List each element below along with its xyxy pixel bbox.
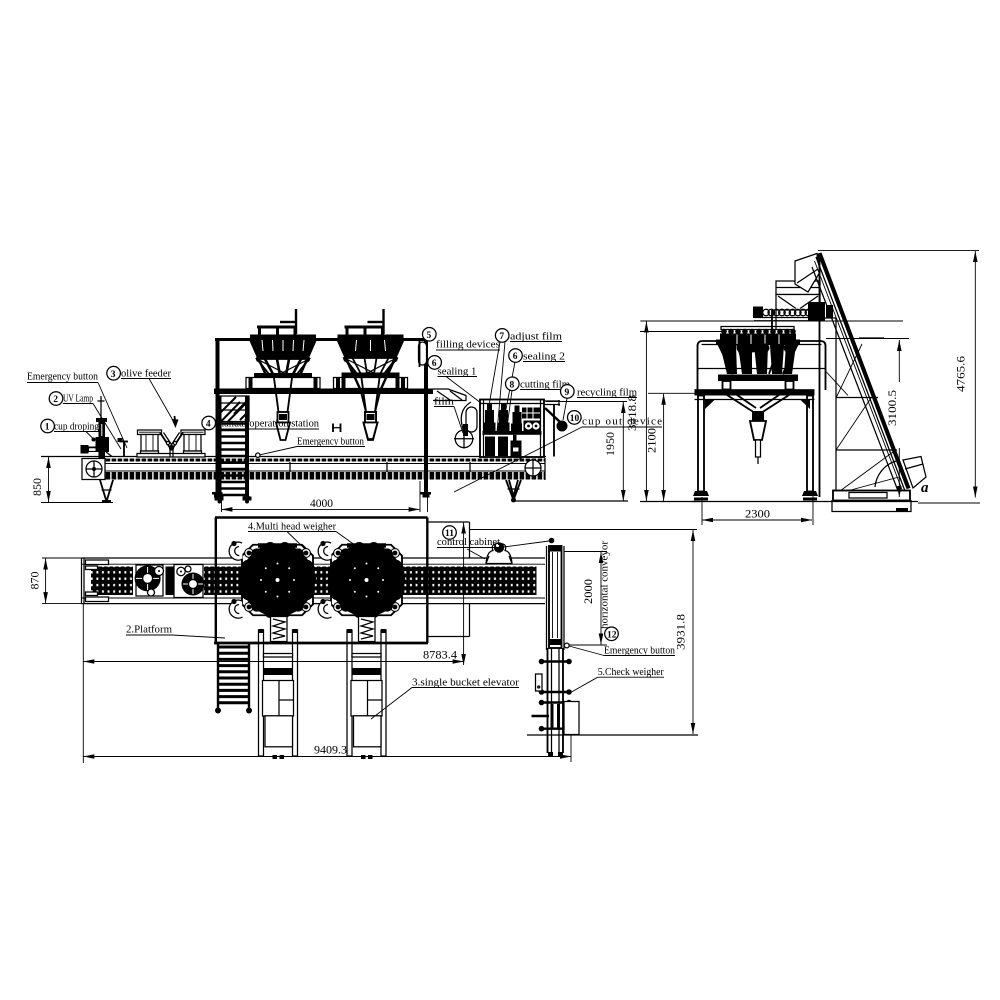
svg-text:cup droping: cup droping <box>54 421 99 433</box>
svg-text:6: 6 <box>513 352 518 362</box>
svg-text:horizontal conveyor: horizontal conveyor <box>599 541 611 629</box>
svg-text:recycling film: recycling film <box>577 387 637 399</box>
svg-text:9: 9 <box>565 388 570 398</box>
svg-text:sealing 1: sealing 1 <box>438 366 477 378</box>
svg-text:4: 4 <box>206 420 211 430</box>
svg-text:3.single bucket elevator: 3.single bucket elevator <box>412 677 519 689</box>
svg-text:2100: 2100 <box>647 428 659 453</box>
svg-text:8: 8 <box>510 380 515 390</box>
svg-text:4000: 4000 <box>310 498 333 510</box>
svg-text:7: 7 <box>499 332 504 342</box>
svg-text:870: 870 <box>30 571 42 589</box>
svg-text:Emergency button: Emergency button <box>297 436 364 448</box>
svg-text:5: 5 <box>427 331 432 341</box>
svg-text:1: 1 <box>45 423 50 433</box>
svg-text:UV Lamp: UV Lamp <box>63 393 93 405</box>
svg-text:9409.3: 9409.3 <box>314 745 347 757</box>
svg-text:2.Platform: 2.Platform <box>126 624 172 636</box>
svg-text:3100.5: 3100.5 <box>887 390 899 426</box>
svg-text:2300: 2300 <box>745 509 770 521</box>
svg-text:3931.8: 3931.8 <box>676 614 688 650</box>
svg-text:4765.6: 4765.6 <box>956 356 968 392</box>
svg-text:control cabinet: control cabinet <box>437 536 500 548</box>
svg-text:2000: 2000 <box>583 579 595 604</box>
svg-text:5.Check weigher: 5.Check weigher <box>598 666 664 678</box>
svg-text:1950: 1950 <box>605 432 617 456</box>
svg-text:sealing 2: sealing 2 <box>523 351 565 363</box>
svg-text:Emergency button: Emergency button <box>604 645 675 657</box>
svg-text:olive feeder: olive feeder <box>121 368 171 380</box>
svg-text:Emergency button: Emergency button <box>27 371 98 383</box>
svg-text:manual operation station: manual operation station <box>216 418 319 430</box>
svg-text:2: 2 <box>53 395 58 405</box>
svg-text:10: 10 <box>570 414 580 424</box>
svg-text:6: 6 <box>432 359 437 369</box>
svg-text:4.Multi head weigher: 4.Multi head weigher <box>248 521 336 533</box>
svg-text:film: film <box>434 396 454 408</box>
svg-text:a: a <box>921 480 929 496</box>
svg-text:filling devices: filling devices <box>436 339 500 351</box>
svg-text:adjust film: adjust film <box>510 331 562 343</box>
svg-text:850: 850 <box>32 478 44 496</box>
svg-text:3: 3 <box>111 370 116 380</box>
svg-text:8783.4: 8783.4 <box>423 650 457 662</box>
svg-text:12: 12 <box>607 630 617 640</box>
